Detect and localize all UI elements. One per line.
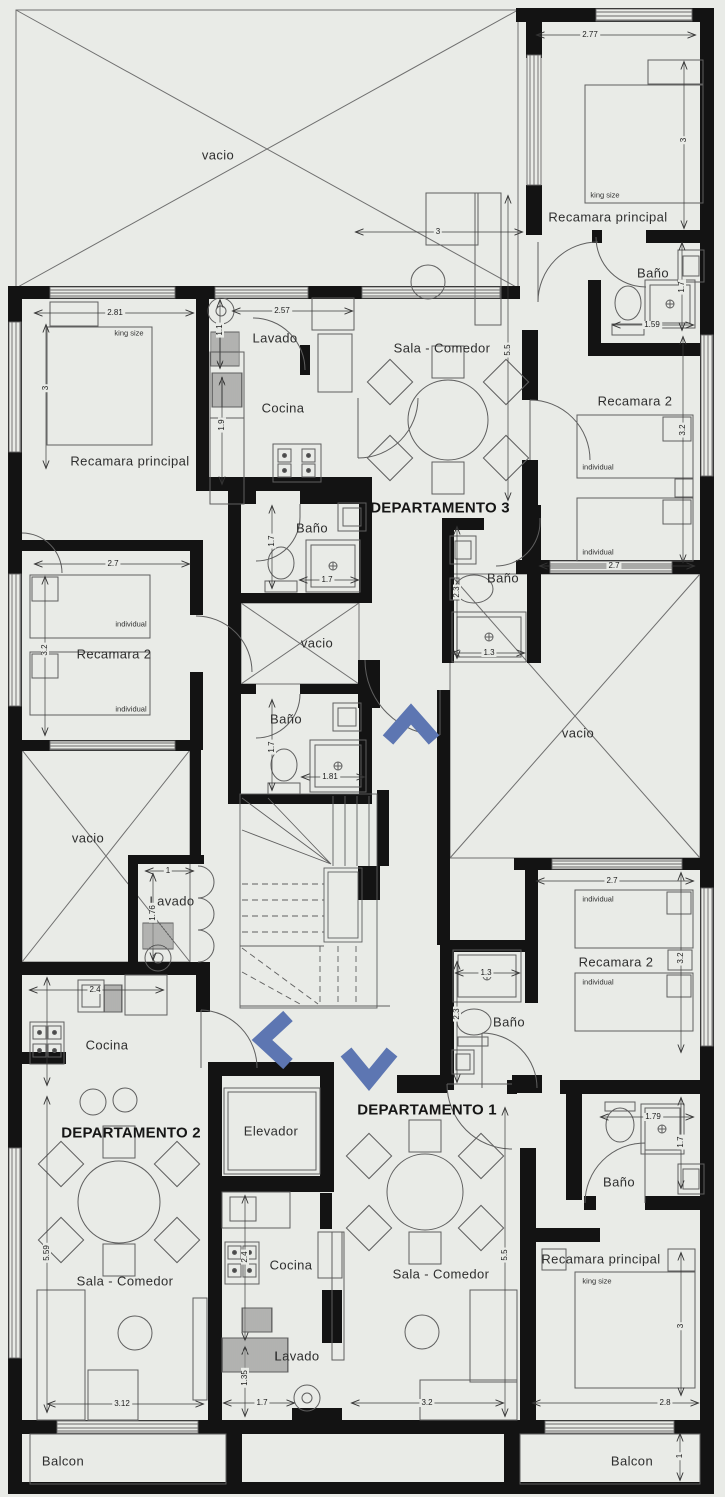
dim-recamara-principal-tr-height: 3 <box>680 136 688 144</box>
shower-mid-lower <box>310 740 366 792</box>
dim-recamara-2-d1-height: 3.2 <box>677 950 685 965</box>
toilet-d1-small <box>457 1009 491 1046</box>
room-label-cocina-d2: Cocina <box>86 1039 129 1052</box>
dim-recamara-2-tr-width: 2.7 <box>606 562 621 570</box>
unit-label-departamento-1: DEPARTAMENTO 1 <box>357 1103 496 1118</box>
dim-recamara-principal-left-width: 2.81 <box>105 309 125 317</box>
room-label-sala-comedor-d2: Sala - Comedor <box>77 1275 174 1288</box>
washer-lavado-d3 <box>208 298 242 407</box>
unit-label-departamento-2: DEPARTAMENTO 2 <box>61 1126 200 1141</box>
bed-label-individual-d1-2: individual <box>582 978 613 986</box>
dim-bano-mid-upper-width: 1.7 <box>319 576 334 584</box>
bed-label-king-d1: king size <box>582 1277 611 1285</box>
room-label-recamara-principal-tr: Recamara principal <box>548 211 667 224</box>
dim-bano-mid-lower-height: 1.7 <box>268 739 276 754</box>
bed-king-left <box>47 302 152 445</box>
bed-label-individual-left-2: individual <box>115 705 146 713</box>
room-label-cocina-d1: Cocina <box>270 1259 313 1272</box>
room-label-bano-tr: Baño <box>637 267 669 280</box>
sink-d1-small <box>452 1050 474 1074</box>
dim-bano-d3-height: 2.3 <box>453 584 461 599</box>
dim-lavado-d1-height: 1.35 <box>241 1368 249 1388</box>
toilet-mid-lower <box>268 749 300 794</box>
room-label-vacio-left: vacio <box>72 832 104 845</box>
dim-bano-d3-width: 1.3 <box>481 649 496 657</box>
dim-bano-d1-main-width: 1.79 <box>643 1113 663 1121</box>
dim-recamara-2-left-height: 3.2 <box>41 642 49 657</box>
dim-cocina-d1-height: 2.4 <box>241 1249 249 1264</box>
door-swings <box>22 237 646 1203</box>
bed-label-individual-tr-2: individual <box>582 548 613 556</box>
room-label-bano-mid-upper: Baño <box>296 522 328 535</box>
dining-set-d3 <box>367 346 528 494</box>
room-label-recamara-2-tr: Recamara 2 <box>598 395 673 408</box>
toilet-tr <box>612 286 644 335</box>
dim-recamara-2-d1-width: 2.7 <box>604 877 619 885</box>
room-label-recamara-2-d1: Recamara 2 <box>579 956 654 969</box>
dim-sala-comedor-d1-height: 5.5 <box>501 1247 509 1262</box>
bed-label-individual-left-1: individual <box>115 620 146 628</box>
stairs <box>240 794 390 1008</box>
dim-lavado-d3-width: 2.57 <box>272 307 292 315</box>
shower-mid-upper <box>306 540 360 592</box>
plan-linework <box>0 0 725 1497</box>
dim-bano-mid-lower-width: 1.81 <box>320 773 340 781</box>
dim-cocina-d3-height: 1.9 <box>218 417 226 432</box>
dining-set-d1 <box>346 1120 503 1264</box>
dim-sala-comedor-d3-width: 3 <box>434 228 442 236</box>
dim-bano-mid-upper-height: 1.7 <box>268 533 276 548</box>
bed-label-king-tr: king size <box>590 191 619 199</box>
dim-balcon-right-height: 1 <box>676 1452 684 1460</box>
dim-bano-d1-small-width: 1.3 <box>478 969 493 977</box>
bed-label-individual-tr-1: individual <box>582 463 613 471</box>
room-label-bano-mid-lower: Baño <box>270 713 302 726</box>
sofa-d1 <box>332 1232 517 1420</box>
dim-recamara-principal-left-height: 3 <box>42 384 50 392</box>
room-label-bano-d3: Baño <box>487 572 519 585</box>
room-label-lavado-d1: Lavado <box>274 1350 319 1363</box>
dim-lavado-d3-height: 1.1 <box>216 322 224 337</box>
chevron-left-icon <box>262 1016 288 1064</box>
room-label-elevador: Elevador <box>244 1125 299 1138</box>
room-label-vacio-right: vacio <box>562 727 594 740</box>
room-label-balcon-left: Balcon <box>42 1455 84 1468</box>
dim-bano-tr-width: 1.59 <box>642 321 662 329</box>
room-label-balcon-right: Balcon <box>611 1455 653 1468</box>
dim-sala-comedor-d2-height: 5.59 <box>43 1243 51 1263</box>
toilet-d1-main <box>605 1102 635 1142</box>
dim-lavado-d1-width: 1.7 <box>254 1399 269 1407</box>
dim-bano-d1-small-height: 2.3 <box>453 1006 461 1021</box>
dining-set-d2 <box>38 1126 199 1276</box>
dim-cocina-d2-width: 2.4 <box>87 986 102 994</box>
dim-lavado-left-height: 1.76 <box>149 903 157 923</box>
room-label-vacio-top-left: vacio <box>202 149 234 162</box>
dim-recamara-principal-d1-height: 3 <box>677 1322 685 1330</box>
room-label-recamara-principal-d1: Recamara principal <box>541 1253 660 1266</box>
balcony-outlines <box>30 1434 700 1484</box>
room-label-bano-d1-main: Baño <box>603 1176 635 1189</box>
room-label-recamara-2-left: Recamara 2 <box>77 648 152 661</box>
bed-label-individual-d1-1: individual <box>582 895 613 903</box>
unit-label-departamento-3: DEPARTAMENTO 3 <box>370 501 509 516</box>
dim-sala-comedor-d2-width: 3.12 <box>112 1400 132 1408</box>
room-label-vacio-middle: vacio <box>301 637 333 650</box>
bed-individual-left-1 <box>30 575 150 638</box>
chevron-down-icon <box>346 1052 392 1080</box>
sink-mid-lower <box>333 703 361 731</box>
bed-king-top-right <box>585 60 703 203</box>
dim-sala-comedor-d3-height: 5.5 <box>504 342 512 357</box>
room-label-recamara-principal-left: Recamara principal <box>70 455 189 468</box>
room-label-cocina-d3: Cocina <box>262 402 305 415</box>
sofa-d3 <box>411 193 501 325</box>
dim-lavado-left-width: 1 <box>164 867 172 875</box>
dim-bano-d1-main-height: 1.7 <box>677 1134 685 1149</box>
dim-bano-tr-height: 1.7 <box>678 279 686 294</box>
dim-sala-comedor-d1-width: 3.2 <box>419 1399 434 1407</box>
dim-recamara-principal-tr-width: 2.77 <box>580 31 600 39</box>
room-label-sala-comedor-d1: Sala - Comedor <box>393 1268 490 1281</box>
dim-recamara-2-left-width: 2.7 <box>105 560 120 568</box>
chevron-up-icon <box>388 714 434 740</box>
room-label-bano-d1-small: Baño <box>493 1016 525 1029</box>
bed-label-king-left: king size <box>114 329 143 337</box>
bed-king-d1 <box>542 1249 695 1388</box>
dim-recamara-principal-d1-width: 2.8 <box>657 1399 672 1407</box>
direction-chevrons <box>262 714 434 1080</box>
dim-recamara-2-tr-height: 3.2 <box>679 422 687 437</box>
room-label-lavado-d3: Lavado <box>252 332 297 345</box>
floor-plan: vacio vacio vacio vacio Recamara princip… <box>0 0 725 1497</box>
room-label-sala-comedor-d3: Sala - Comedor <box>394 342 491 355</box>
